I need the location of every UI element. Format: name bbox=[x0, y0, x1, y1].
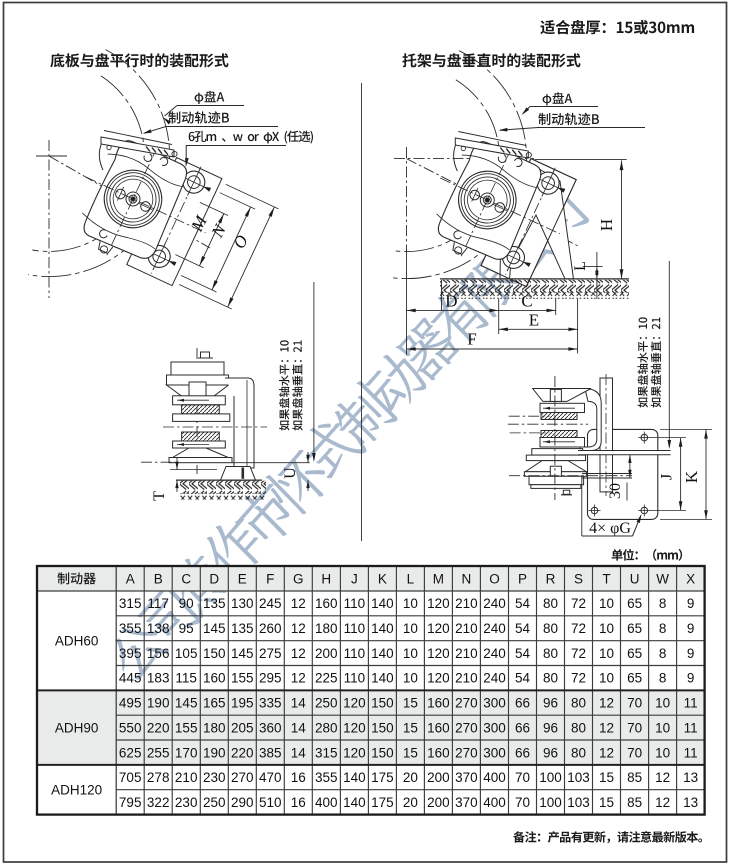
svg-text:20: 20 bbox=[403, 770, 418, 785]
svg-text:10: 10 bbox=[403, 621, 418, 636]
svg-text:140: 140 bbox=[371, 671, 394, 686]
svg-text:210: 210 bbox=[455, 671, 478, 686]
svg-text:80: 80 bbox=[571, 696, 586, 711]
svg-text:275: 275 bbox=[259, 646, 282, 661]
svg-text:66: 66 bbox=[515, 720, 530, 735]
svg-text:190: 190 bbox=[203, 745, 226, 760]
svg-text:120: 120 bbox=[427, 671, 450, 686]
svg-text:225: 225 bbox=[315, 671, 338, 686]
svg-text:F: F bbox=[266, 571, 274, 586]
svg-text:200: 200 bbox=[315, 646, 338, 661]
svg-text:15: 15 bbox=[599, 770, 614, 785]
svg-text:T: T bbox=[602, 571, 610, 586]
svg-text:355: 355 bbox=[315, 770, 338, 785]
svg-text:240: 240 bbox=[483, 671, 506, 686]
svg-text:12: 12 bbox=[599, 696, 614, 711]
svg-text:80: 80 bbox=[543, 671, 558, 686]
svg-text:54: 54 bbox=[515, 621, 531, 636]
svg-text:395: 395 bbox=[119, 646, 142, 661]
svg-text:G: G bbox=[293, 571, 304, 586]
svg-text:O: O bbox=[489, 571, 500, 586]
svg-text:495: 495 bbox=[119, 696, 142, 711]
svg-text:160: 160 bbox=[427, 745, 450, 760]
svg-text:210: 210 bbox=[455, 646, 478, 661]
svg-text:295: 295 bbox=[259, 671, 282, 686]
svg-text:230: 230 bbox=[175, 795, 198, 810]
svg-text:145: 145 bbox=[231, 646, 254, 661]
svg-text:165: 165 bbox=[203, 696, 226, 711]
svg-text:16: 16 bbox=[291, 795, 306, 810]
svg-text:54: 54 bbox=[515, 596, 531, 611]
svg-text:14: 14 bbox=[291, 745, 307, 760]
svg-text:400: 400 bbox=[483, 795, 506, 810]
svg-text:220: 220 bbox=[231, 745, 254, 760]
svg-text:138: 138 bbox=[147, 621, 170, 636]
svg-text:145: 145 bbox=[175, 696, 198, 711]
svg-text:80: 80 bbox=[543, 621, 558, 636]
svg-text:72: 72 bbox=[571, 646, 586, 661]
svg-text:250: 250 bbox=[203, 795, 226, 810]
svg-text:66: 66 bbox=[515, 696, 530, 711]
svg-text:10: 10 bbox=[655, 720, 670, 735]
svg-text:230: 230 bbox=[203, 770, 226, 785]
svg-text:140: 140 bbox=[371, 596, 394, 611]
svg-text:12: 12 bbox=[291, 671, 306, 686]
svg-text:240: 240 bbox=[483, 596, 506, 611]
svg-text:355: 355 bbox=[119, 621, 142, 636]
svg-text:4× φG: 4× φG bbox=[589, 520, 631, 537]
svg-text:8: 8 bbox=[659, 621, 667, 636]
svg-text:240: 240 bbox=[483, 621, 506, 636]
svg-text:72: 72 bbox=[571, 671, 586, 686]
svg-text:150: 150 bbox=[371, 745, 394, 760]
svg-text:10: 10 bbox=[655, 745, 670, 760]
svg-text:250: 250 bbox=[315, 696, 338, 711]
svg-text:96: 96 bbox=[543, 696, 558, 711]
svg-text:315: 315 bbox=[315, 745, 338, 760]
svg-text:90: 90 bbox=[179, 596, 194, 611]
svg-text:85: 85 bbox=[627, 795, 642, 810]
svg-text:705: 705 bbox=[119, 770, 142, 785]
svg-text:R: R bbox=[546, 571, 556, 586]
svg-text:155: 155 bbox=[175, 720, 198, 735]
svg-text:L: L bbox=[572, 261, 589, 271]
svg-text:300: 300 bbox=[483, 696, 506, 711]
svg-text:240: 240 bbox=[483, 646, 506, 661]
svg-text:300: 300 bbox=[483, 720, 506, 735]
svg-text:385: 385 bbox=[259, 745, 282, 760]
svg-text:8: 8 bbox=[659, 596, 667, 611]
svg-text:103: 103 bbox=[567, 770, 590, 785]
svg-text:175: 175 bbox=[371, 795, 394, 810]
svg-text:J: J bbox=[659, 474, 676, 480]
svg-text:10: 10 bbox=[599, 671, 614, 686]
svg-text:510: 510 bbox=[259, 795, 282, 810]
svg-text:115: 115 bbox=[175, 671, 197, 686]
svg-text:30: 30 bbox=[607, 483, 624, 499]
svg-text:120: 120 bbox=[343, 720, 366, 735]
svg-text:70: 70 bbox=[627, 745, 642, 760]
svg-text:270: 270 bbox=[455, 720, 478, 735]
svg-text:A: A bbox=[126, 571, 135, 586]
svg-text:315: 315 bbox=[119, 596, 142, 611]
svg-text:140: 140 bbox=[371, 646, 394, 661]
svg-text:160: 160 bbox=[315, 596, 338, 611]
svg-text:140: 140 bbox=[343, 795, 366, 810]
svg-text:12: 12 bbox=[655, 770, 670, 785]
svg-text:322: 322 bbox=[147, 795, 170, 810]
svg-text:190: 190 bbox=[147, 696, 170, 711]
svg-text:13: 13 bbox=[683, 795, 698, 810]
svg-text:10: 10 bbox=[655, 696, 670, 711]
svg-text:C: C bbox=[521, 292, 532, 311]
svg-text:150: 150 bbox=[203, 646, 226, 661]
svg-text:70: 70 bbox=[515, 795, 530, 810]
svg-text:H: H bbox=[597, 219, 616, 231]
svg-text:65: 65 bbox=[627, 621, 642, 636]
svg-text:14: 14 bbox=[291, 720, 307, 735]
svg-text:280: 280 bbox=[315, 720, 338, 735]
svg-text:95: 95 bbox=[179, 621, 194, 636]
svg-text:550: 550 bbox=[119, 720, 142, 735]
svg-text:10: 10 bbox=[403, 596, 418, 611]
svg-text:D: D bbox=[445, 292, 457, 311]
svg-text:205: 205 bbox=[231, 720, 254, 735]
svg-text:150: 150 bbox=[371, 720, 394, 735]
svg-text:180: 180 bbox=[315, 621, 338, 636]
svg-text:54: 54 bbox=[515, 671, 531, 686]
svg-text:P: P bbox=[518, 571, 527, 586]
svg-text:65: 65 bbox=[627, 671, 642, 686]
svg-text:65: 65 bbox=[627, 596, 642, 611]
svg-text:12: 12 bbox=[291, 646, 306, 661]
svg-text:400: 400 bbox=[483, 770, 506, 785]
svg-text:156: 156 bbox=[147, 646, 170, 661]
svg-text:120: 120 bbox=[343, 696, 366, 711]
svg-text:K: K bbox=[378, 571, 387, 586]
svg-text:10: 10 bbox=[403, 646, 418, 661]
svg-text:470: 470 bbox=[259, 770, 282, 785]
svg-text:170: 170 bbox=[175, 745, 198, 760]
svg-text:14: 14 bbox=[291, 696, 307, 711]
svg-text:15: 15 bbox=[403, 720, 418, 735]
svg-text:J: J bbox=[351, 571, 358, 586]
svg-text:ADH90: ADH90 bbox=[55, 720, 99, 735]
svg-text:80: 80 bbox=[543, 596, 558, 611]
svg-text:N: N bbox=[462, 571, 472, 586]
svg-text:110: 110 bbox=[344, 621, 366, 636]
svg-text:72: 72 bbox=[571, 596, 586, 611]
svg-text:135: 135 bbox=[231, 621, 254, 636]
svg-text:445: 445 bbox=[119, 671, 142, 686]
svg-text:300: 300 bbox=[483, 745, 506, 760]
svg-text:260: 260 bbox=[259, 621, 282, 636]
svg-text:160: 160 bbox=[203, 671, 226, 686]
svg-text:335: 335 bbox=[259, 696, 282, 711]
svg-text:54: 54 bbox=[515, 646, 531, 661]
svg-text:80: 80 bbox=[571, 720, 586, 735]
svg-text:183: 183 bbox=[147, 671, 170, 686]
svg-text:10: 10 bbox=[599, 596, 614, 611]
svg-text:15: 15 bbox=[403, 745, 418, 760]
svg-text:9: 9 bbox=[687, 671, 695, 686]
svg-text:72: 72 bbox=[571, 621, 586, 636]
svg-text:150: 150 bbox=[371, 696, 394, 711]
svg-text:70: 70 bbox=[627, 720, 642, 735]
svg-text:15: 15 bbox=[403, 696, 418, 711]
svg-text:66: 66 bbox=[515, 745, 530, 760]
svg-text:110: 110 bbox=[344, 646, 366, 661]
svg-text:11: 11 bbox=[684, 696, 698, 711]
svg-text:100: 100 bbox=[539, 770, 562, 785]
svg-text:9: 9 bbox=[687, 646, 695, 661]
svg-text:160: 160 bbox=[427, 696, 450, 711]
svg-text:C: C bbox=[181, 571, 191, 586]
svg-text:400: 400 bbox=[315, 795, 338, 810]
svg-text:L: L bbox=[407, 571, 415, 586]
svg-text:U: U bbox=[282, 467, 299, 479]
svg-text:70: 70 bbox=[627, 696, 642, 711]
svg-text:120: 120 bbox=[427, 646, 450, 661]
svg-text:M: M bbox=[433, 571, 444, 586]
svg-text:200: 200 bbox=[427, 770, 450, 785]
svg-text:85: 85 bbox=[627, 770, 642, 785]
svg-text:255: 255 bbox=[147, 745, 170, 760]
svg-text:210: 210 bbox=[175, 770, 198, 785]
svg-text:8: 8 bbox=[659, 671, 667, 686]
svg-text:270: 270 bbox=[231, 770, 254, 785]
svg-text:370: 370 bbox=[455, 795, 478, 810]
svg-text:130: 130 bbox=[231, 596, 254, 611]
svg-text:100: 100 bbox=[539, 795, 562, 810]
svg-text:103: 103 bbox=[567, 795, 590, 810]
svg-text:70: 70 bbox=[515, 770, 530, 785]
svg-text:110: 110 bbox=[344, 596, 366, 611]
svg-text:20: 20 bbox=[403, 795, 418, 810]
svg-text:200: 200 bbox=[427, 795, 450, 810]
svg-text:210: 210 bbox=[455, 621, 478, 636]
svg-text:D: D bbox=[209, 571, 219, 586]
svg-text:278: 278 bbox=[147, 770, 170, 785]
svg-text:195: 195 bbox=[231, 696, 254, 711]
svg-text:15: 15 bbox=[599, 795, 614, 810]
svg-text:120: 120 bbox=[427, 596, 450, 611]
svg-text:11: 11 bbox=[684, 720, 698, 735]
svg-text:370: 370 bbox=[455, 770, 478, 785]
svg-text:96: 96 bbox=[543, 745, 558, 760]
svg-text:12: 12 bbox=[599, 720, 614, 735]
svg-text:10: 10 bbox=[599, 646, 614, 661]
svg-text:13: 13 bbox=[683, 770, 698, 785]
svg-text:145: 145 bbox=[203, 621, 226, 636]
svg-text:245: 245 bbox=[259, 596, 282, 611]
svg-text:180: 180 bbox=[203, 720, 226, 735]
svg-text:H: H bbox=[321, 571, 331, 586]
svg-text:F: F bbox=[467, 330, 476, 349]
svg-text:135: 135 bbox=[203, 596, 226, 611]
svg-text:X: X bbox=[686, 571, 695, 586]
svg-text:T: T bbox=[151, 491, 168, 501]
svg-text:ADH60: ADH60 bbox=[55, 634, 99, 649]
svg-text:U: U bbox=[630, 571, 640, 586]
svg-text:96: 96 bbox=[543, 720, 558, 735]
svg-text:120: 120 bbox=[343, 745, 366, 760]
svg-text:140: 140 bbox=[343, 770, 366, 785]
svg-text:65: 65 bbox=[627, 646, 642, 661]
svg-text:12: 12 bbox=[291, 621, 306, 636]
svg-text:360: 360 bbox=[259, 720, 282, 735]
svg-text:80: 80 bbox=[543, 646, 558, 661]
svg-text:175: 175 bbox=[371, 770, 394, 785]
svg-text:16: 16 bbox=[291, 770, 306, 785]
svg-text:270: 270 bbox=[455, 745, 478, 760]
svg-text:E: E bbox=[529, 311, 539, 330]
svg-text:625: 625 bbox=[119, 745, 142, 760]
svg-text:160: 160 bbox=[427, 720, 450, 735]
svg-text:290: 290 bbox=[231, 795, 254, 810]
svg-text:11: 11 bbox=[684, 745, 698, 760]
svg-text:155: 155 bbox=[231, 671, 254, 686]
svg-text:110: 110 bbox=[344, 671, 366, 686]
svg-text:80: 80 bbox=[571, 745, 586, 760]
svg-text:220: 220 bbox=[147, 720, 170, 735]
svg-text:8: 8 bbox=[659, 646, 667, 661]
svg-text:12: 12 bbox=[599, 745, 614, 760]
svg-text:120: 120 bbox=[427, 621, 450, 636]
svg-text:K: K bbox=[682, 470, 701, 483]
svg-text:E: E bbox=[238, 571, 247, 586]
svg-text:10: 10 bbox=[403, 671, 418, 686]
svg-text:W: W bbox=[656, 571, 669, 586]
svg-text:105: 105 bbox=[175, 646, 198, 661]
svg-text:140: 140 bbox=[371, 621, 394, 636]
svg-text:795: 795 bbox=[119, 795, 142, 810]
svg-text:12: 12 bbox=[291, 596, 306, 611]
svg-text:9: 9 bbox=[687, 621, 695, 636]
svg-text:B: B bbox=[154, 571, 163, 586]
svg-text:210: 210 bbox=[455, 596, 478, 611]
svg-text:9: 9 bbox=[687, 596, 695, 611]
svg-text:117: 117 bbox=[147, 596, 169, 611]
svg-text:S: S bbox=[574, 571, 583, 586]
svg-text:270: 270 bbox=[455, 696, 478, 711]
svg-text:12: 12 bbox=[655, 795, 670, 810]
svg-text:ADH120: ADH120 bbox=[51, 783, 102, 798]
svg-text:10: 10 bbox=[599, 621, 614, 636]
